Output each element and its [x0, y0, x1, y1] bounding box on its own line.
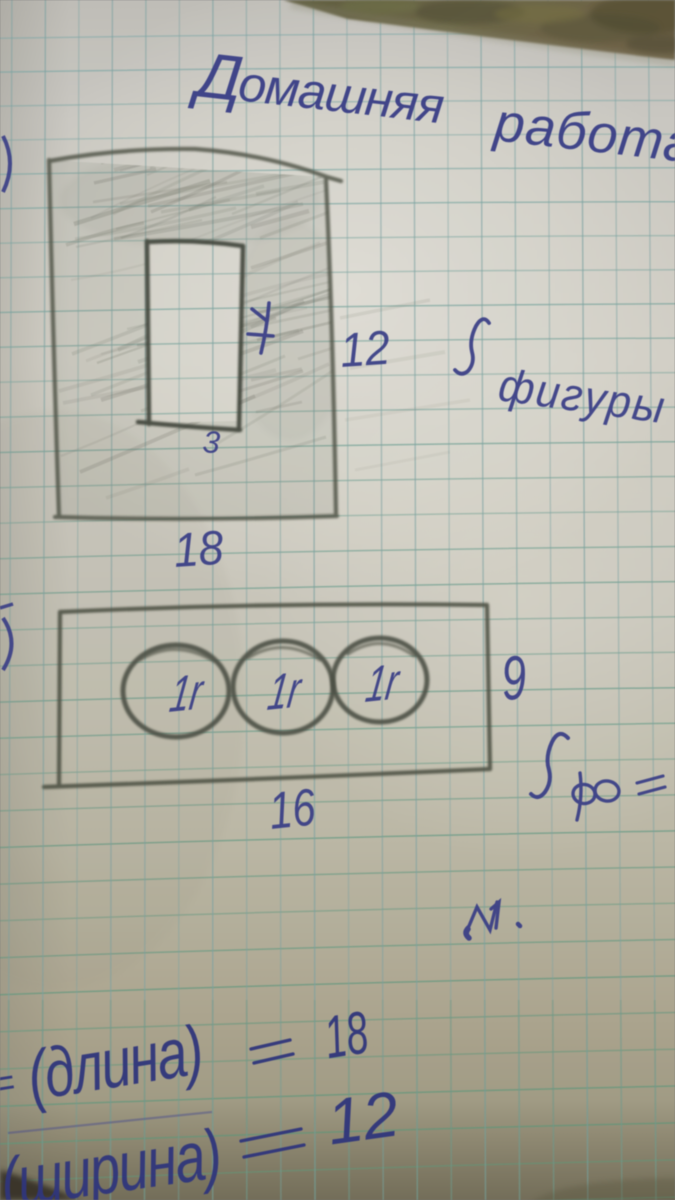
svg-text:18: 18	[172, 520, 225, 577]
svg-text:9: 9	[499, 643, 529, 713]
svg-text:3: 3	[202, 424, 222, 460]
svg-text:12: 12	[323, 1077, 404, 1158]
svg-text:16: 16	[266, 777, 319, 840]
svg-text:12: 12	[338, 320, 391, 377]
